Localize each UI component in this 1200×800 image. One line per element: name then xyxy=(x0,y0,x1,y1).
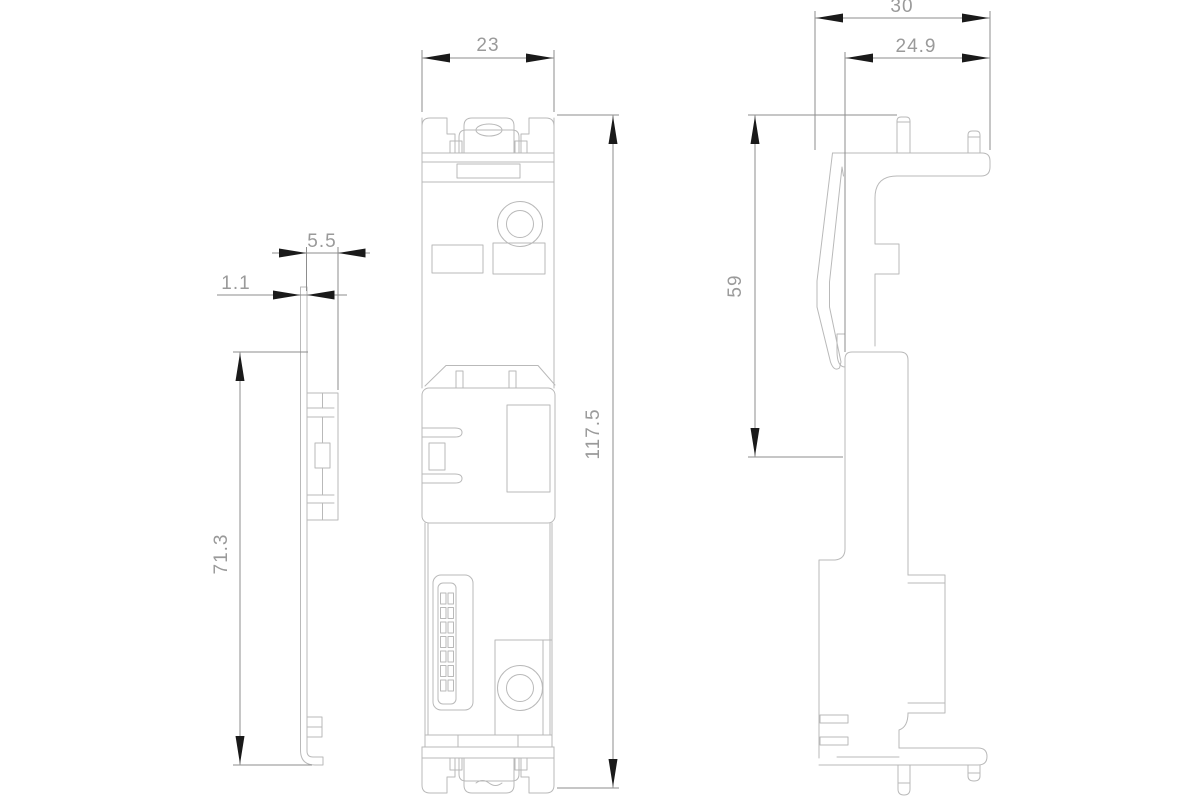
front-bottom-tab xyxy=(458,735,518,747)
arrowhead xyxy=(816,14,843,23)
terminal-contact xyxy=(448,666,454,677)
arrowhead xyxy=(962,14,989,23)
front-label-field-left xyxy=(432,245,483,273)
right-side-protrusion xyxy=(908,575,945,713)
front-chamfer xyxy=(425,366,555,387)
front-screw-bottom-inner xyxy=(507,675,534,702)
arrowhead xyxy=(609,116,618,144)
terminal-contact xyxy=(448,651,454,662)
front-module-window xyxy=(507,405,550,492)
front-label-field-right xyxy=(493,243,545,274)
front-screw-top-outer xyxy=(498,202,543,247)
side-profile-left-view: 5.5 1.1 71.3 xyxy=(211,231,370,765)
drawing-canvas: 5.5 1.1 71.3 xyxy=(0,0,1200,800)
terminal-contact xyxy=(448,637,454,648)
dimension-wall-thickness: 1.1 xyxy=(217,273,347,300)
terminal-contact xyxy=(448,608,454,619)
arrowhead xyxy=(609,759,618,787)
dimension-front-width: 23 xyxy=(422,35,554,112)
dimension-overall-height: 117.5 xyxy=(557,115,619,788)
front-view: 23 117.5 xyxy=(422,35,619,793)
right-body-left-edge xyxy=(819,359,845,758)
right-lower-curve xyxy=(899,713,908,748)
front-top-clamp xyxy=(422,118,554,153)
arrowhead xyxy=(846,54,873,63)
front-module-latch xyxy=(429,443,445,470)
dimension-overall-depth: 30 xyxy=(815,0,990,150)
left-view-clip-latch xyxy=(315,443,330,468)
terminal-contact xyxy=(448,593,454,604)
terminal-contact xyxy=(441,666,447,677)
left-view-wall-and-foot xyxy=(301,287,324,765)
terminal-contact xyxy=(448,680,454,691)
right-top-pins xyxy=(897,117,980,153)
arrowhead xyxy=(273,291,301,300)
dimension-upper-height: 59 xyxy=(725,115,897,457)
right-bottom-pins xyxy=(898,765,980,795)
arrowhead xyxy=(751,116,760,144)
dimension-bracket-height: 71.3 xyxy=(211,352,312,765)
arrowhead xyxy=(236,353,245,381)
front-top-tab xyxy=(457,164,520,178)
arrowhead xyxy=(307,291,335,300)
dimension-label: 24.9 xyxy=(896,36,937,57)
right-tooth-lower xyxy=(820,737,848,745)
front-pin-right xyxy=(509,371,516,388)
arrowhead xyxy=(236,736,245,764)
dimension-body-depth: 24.9 xyxy=(845,36,990,352)
terminal-contact xyxy=(441,680,447,691)
front-pin-left xyxy=(456,371,463,388)
terminal-contact xyxy=(441,651,447,662)
terminal-contact xyxy=(441,637,447,648)
dimension-flange-depth: 5.5 xyxy=(272,231,370,390)
dimension-label: 23 xyxy=(476,35,499,56)
terminal-contact xyxy=(448,622,454,633)
arrowhead xyxy=(751,428,760,456)
arrowhead xyxy=(962,54,989,63)
dimension-label: 30 xyxy=(890,0,913,17)
arrowhead xyxy=(526,54,553,63)
dimension-label: 5.5 xyxy=(307,231,336,252)
arrowhead xyxy=(423,54,450,63)
front-module-slots xyxy=(422,428,462,483)
side-profile-right-view: 30 24.9 59 xyxy=(725,0,990,795)
technical-drawing: 5.5 1.1 71.3 xyxy=(0,0,1200,800)
terminal-contact xyxy=(441,608,447,619)
terminal-contact xyxy=(441,593,447,604)
dimension-label: 71.3 xyxy=(211,534,232,575)
right-tooth-upper xyxy=(820,715,848,723)
dimension-label: 59 xyxy=(725,274,746,297)
arrowhead xyxy=(279,249,307,258)
left-view-clip-block xyxy=(307,393,338,520)
right-foot xyxy=(819,748,987,765)
front-terminal-pin-grid xyxy=(441,593,454,691)
front-lower-bands xyxy=(422,640,554,758)
front-screw-top-inner xyxy=(507,211,534,238)
terminal-contact xyxy=(441,622,447,633)
arrowhead xyxy=(338,249,366,258)
right-hook-claw xyxy=(817,153,844,369)
right-body-block xyxy=(845,352,908,575)
front-module-block xyxy=(422,388,555,523)
front-screw-bottom-outer xyxy=(498,666,543,711)
right-arm-and-bar xyxy=(833,153,991,346)
front-bottom-clamp xyxy=(422,758,554,793)
dimension-label: 117.5 xyxy=(583,408,604,459)
dimension-label: 1.1 xyxy=(221,273,250,294)
